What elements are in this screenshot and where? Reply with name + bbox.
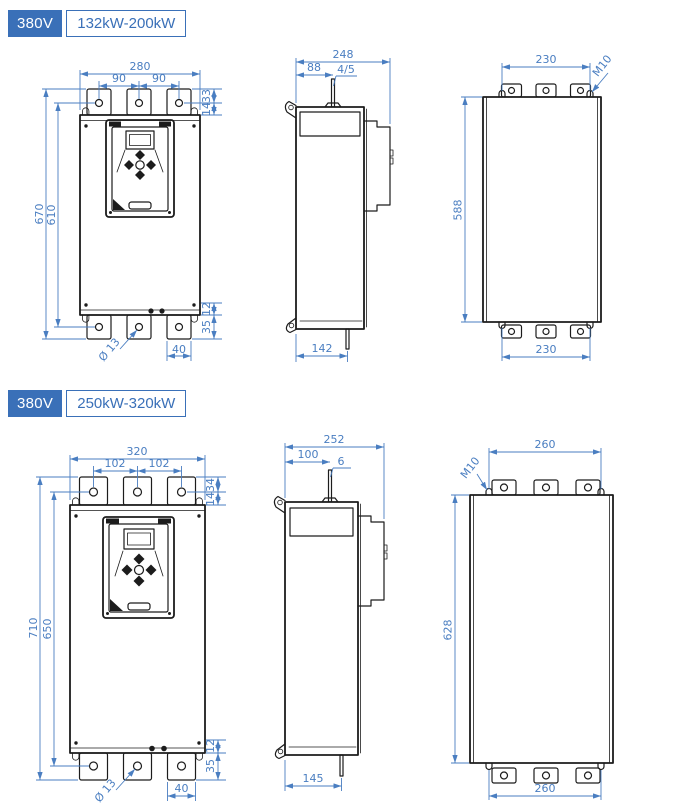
dim-s1-stud-size: 4/5 — [337, 63, 355, 76]
dim-f2-total-height: 710 — [27, 618, 40, 639]
dim-f1-pitch-right: 90 — [152, 72, 166, 85]
side-view-1 — [285, 79, 393, 349]
dim-b1-top-pitch: 230 — [536, 53, 557, 66]
dim-f2-total-width: 320 — [127, 445, 148, 458]
dim-s1-base-depth: 142 — [312, 342, 333, 355]
dim-f1-bottom-offset: 12 — [200, 302, 213, 316]
dim-b2-mount-height: 628 — [442, 620, 455, 641]
dim-s2-base-depth: 145 — [303, 772, 324, 785]
dim-b2-top-pitch: 260 — [535, 438, 556, 451]
dim-f1-foot-width: 40 — [172, 343, 186, 356]
dim-f2-top-offset: 14 — [204, 492, 217, 506]
dim-f2-pitch-right: 102 — [149, 457, 170, 470]
dim-b1-mount-height: 588 — [452, 200, 465, 221]
back-view-1 — [483, 84, 601, 338]
dim-s2-total-depth: 252 — [324, 433, 345, 446]
dim-b1-bottom-pitch: 230 — [536, 343, 557, 356]
dim-f1-hole-dia: Ø 13 — [96, 336, 123, 364]
dim-f2-tab-height: 34 — [204, 478, 217, 492]
dim-s1-total-depth: 248 — [333, 48, 354, 61]
dim-f2-bottom-offset: 12 — [204, 739, 217, 753]
dim-f2-mount-height: 650 — [41, 619, 54, 640]
dim-f1-total-width: 280 — [130, 60, 151, 73]
dim-f2-pitch-left: 102 — [105, 457, 126, 470]
side-view-2 — [274, 470, 387, 776]
dim-f1-top-offset: 14 — [200, 102, 213, 116]
front-view-2 — [70, 477, 205, 780]
dim-f2-hole-dia: Ø 13 — [92, 777, 119, 805]
dimension-drawing-canvas: 280 90 90 33 14 670 610 12 35 — [0, 0, 687, 809]
dim-b1-thread: M10 — [590, 53, 615, 80]
dim-f1-pitch-left: 90 — [112, 72, 126, 85]
dim-f1-bottom-tab: 35 — [200, 320, 213, 334]
technical-drawing-page: { "colors": { "header_bg": "#3a70b8", "d… — [0, 0, 687, 809]
dim-s1-stud-pos: 88 — [307, 61, 321, 74]
dim-f1-tab-height: 33 — [200, 89, 213, 103]
dim-b2-bottom-pitch: 260 — [535, 782, 556, 795]
dim-f2-bottom-tab: 35 — [204, 759, 217, 773]
dim-s2-stud-size: 6 — [338, 455, 345, 468]
dim-f1-mount-height: 610 — [45, 205, 58, 226]
dim-s2-stud-pos: 100 — [298, 448, 319, 461]
dim-f2-foot-width: 40 — [175, 782, 189, 795]
back-view-2 — [470, 480, 613, 783]
front-view-1 — [80, 89, 200, 339]
